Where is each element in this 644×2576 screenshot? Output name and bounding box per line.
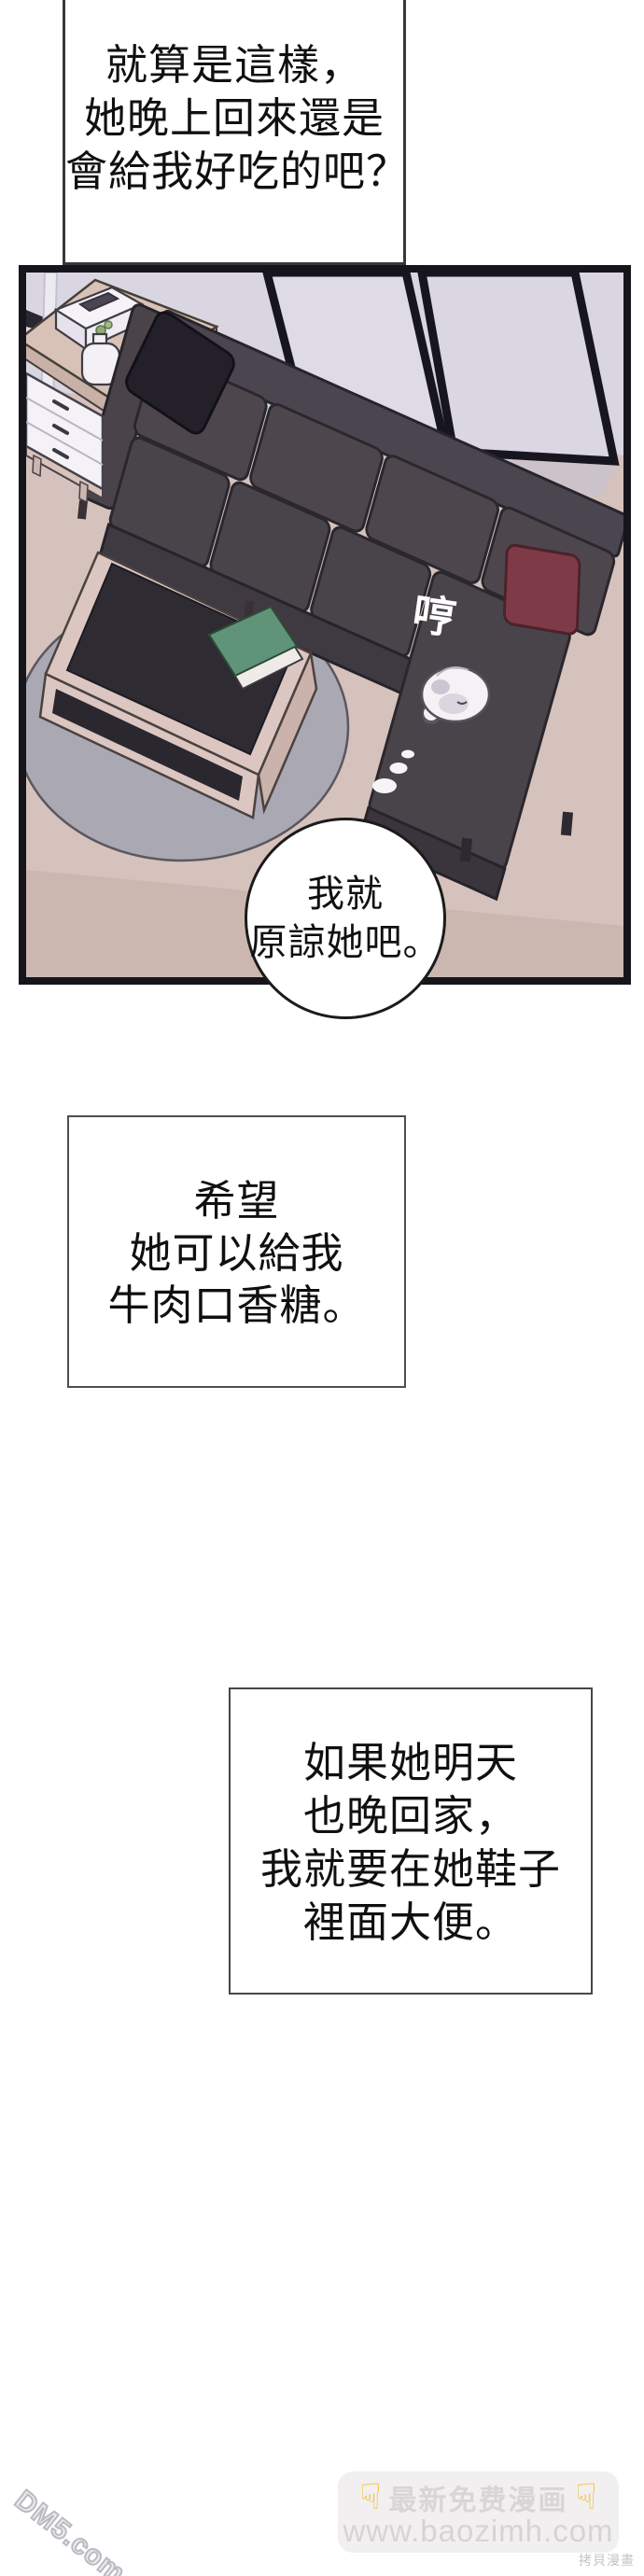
narration-line: 就算是這樣， <box>65 38 403 91</box>
diagonal-watermark-text: DM5.com <box>9 2485 132 2576</box>
speech-bubble: 我就 原諒她吧。 <box>245 818 446 1019</box>
narration-line: 她可以給我 <box>69 1227 404 1280</box>
diagonal-watermark: DM5.com <box>8 2485 132 2576</box>
watermark-badge: ☟ 最新免费漫画 ☟ www.baozimh.com <box>338 2471 619 2553</box>
narration-line: 裡面大便。 <box>231 1896 591 1949</box>
narration-line: 她晚上回來還是 <box>65 91 403 145</box>
narration-line: 會給我好吃的吧？ <box>65 145 403 198</box>
narration-box-top: 就算是這樣， 她晚上回來還是 會給我好吃的吧？ <box>63 0 406 265</box>
narration-line: 牛肉口香糖。 <box>69 1280 404 1332</box>
narration-box-bottom: 如果她明天 也晚回家， 我就要在她鞋子 裡面大便。 <box>229 1687 593 1995</box>
red-pillow <box>504 544 580 636</box>
narration-box-middle: 希望 她可以給我 牛肉口香糖。 <box>67 1115 406 1388</box>
site-name-text: 最新免费漫画 <box>389 2477 568 2518</box>
site-url-text: www.baozimh.com <box>343 2514 613 2548</box>
corner-watermark: 拷貝漫畫 <box>579 2551 635 2569</box>
narration-line: 我就要在她鞋子 <box>231 1842 591 1896</box>
narration-line: 如果她明天 <box>231 1736 591 1789</box>
bubble-line: 我就 <box>307 870 384 918</box>
hand-down-icon: ☟ <box>359 2479 381 2516</box>
dog <box>422 667 489 723</box>
bubble-line: 原諒她吧。 <box>250 918 441 967</box>
sfx-text: 哼 <box>410 589 459 643</box>
hand-down-icon: ☟ <box>576 2479 597 2516</box>
narration-line: 希望 <box>69 1175 404 1227</box>
narration-line: 也晚回家， <box>231 1789 591 1842</box>
comic-page: 就算是這樣， 她晚上回來還是 會給我好吃的吧？ <box>0 0 644 2576</box>
